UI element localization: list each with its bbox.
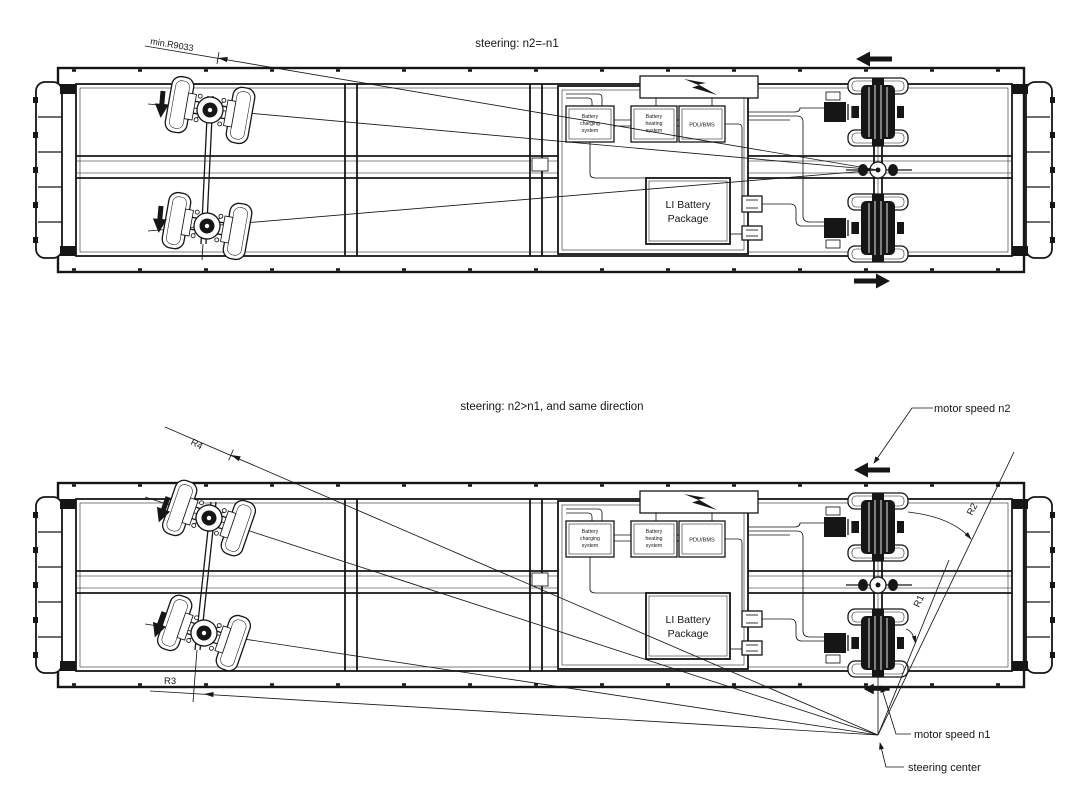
steering-diagram-svg: Battery charging system Battery heating … [0, 0, 1080, 795]
r4-label: R4 [189, 437, 205, 452]
r4-arrowhead [229, 449, 242, 464]
r3-arrowhead [204, 691, 214, 697]
top-diagram: steering: n2=-n1 min.R9033 [33, 36, 1055, 288]
steering-center-label: steering center [908, 762, 981, 774]
top-rear-arrow-left [856, 52, 892, 67]
top-rear-arrow-right [854, 274, 890, 289]
bottom-rear-arrow-n2 [854, 463, 890, 478]
motor-speed-n2-label: motor speed n2 [934, 403, 1010, 415]
annotation-motor-speed-n2: motor speed n2 [874, 403, 1010, 463]
bottom-diagram-title: steering: n2>n1, and same direction [460, 401, 643, 413]
motor-speed-n1-label: motor speed n1 [914, 729, 990, 741]
annotation-steering-center: steering center [880, 743, 981, 774]
top-diagram-title: steering: n2=-n1 [475, 38, 558, 50]
diagram-canvas: Battery charging system Battery heating … [0, 0, 1080, 795]
r3-label: R3 [164, 676, 176, 687]
bottom-diagram: steering: n2>n1, and same direction [33, 401, 1055, 774]
